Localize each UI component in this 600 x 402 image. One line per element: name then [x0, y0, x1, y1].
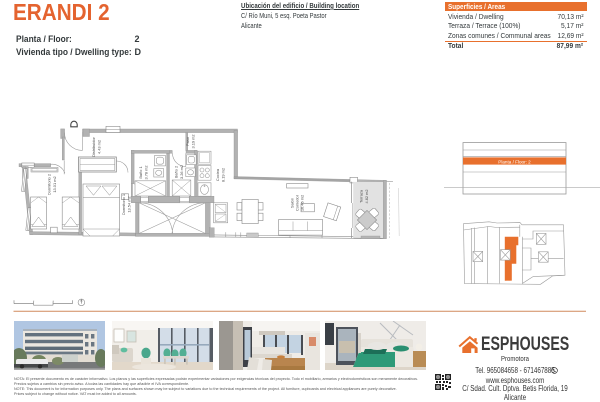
svg-text:Baño 1: Baño 1: [138, 166, 143, 178]
svg-text:4.82 m2: 4.82 m2: [364, 189, 369, 203]
svg-text:Dormitorio 1: Dormitorio 1: [121, 194, 126, 215]
svg-text:Planta / Floor: 2: Planta / Floor: 2: [498, 159, 531, 164]
svg-text:16.46 m2: 16.46 m2: [300, 195, 305, 211]
svg-text:3.78 m2: 3.78 m2: [143, 165, 148, 179]
svg-text:4.43 m2: 4.43 m2: [96, 140, 101, 154]
svg-text:13.01 m2: 13.01 m2: [52, 176, 57, 192]
svg-text:Terraza: Terraza: [359, 189, 364, 203]
svg-text:Distribuidor: Distribuidor: [91, 136, 96, 156]
svg-text:Paso: Paso: [185, 137, 190, 146]
svg-text:Baño 2: Baño 2: [174, 166, 179, 178]
svg-text:Dormitorio 2: Dormitorio 2: [47, 174, 52, 195]
svg-text:8.19 m2: 8.19 m2: [220, 168, 225, 182]
svg-text:3.19 m2: 3.19 m2: [190, 134, 195, 148]
svg-text:3.26 m2: 3.26 m2: [179, 165, 184, 179]
svg-text:Cocina: Cocina: [215, 168, 220, 181]
svg-text:13.54 m2: 13.54 m2: [126, 196, 131, 212]
